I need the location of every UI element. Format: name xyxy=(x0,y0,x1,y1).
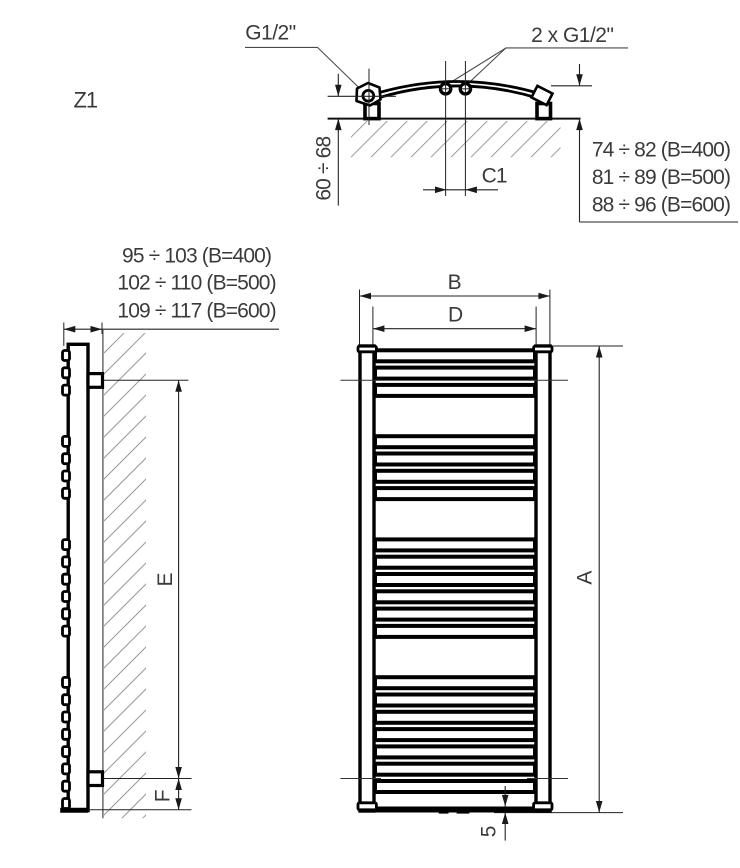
svg-text:88 ÷ 96 (B=600): 88 ÷ 96 (B=600) xyxy=(592,194,730,217)
svg-text:D: D xyxy=(448,304,463,327)
svg-text:G1/2": G1/2" xyxy=(245,21,296,44)
svg-text:B: B xyxy=(448,271,462,294)
svg-text:81 ÷ 89 (B=500): 81 ÷ 89 (B=500) xyxy=(592,166,730,189)
svg-text:5: 5 xyxy=(478,826,501,838)
svg-text:A: A xyxy=(574,571,597,585)
svg-text:F: F xyxy=(152,789,175,802)
svg-text:95 ÷ 103 (B=400): 95 ÷ 103 (B=400) xyxy=(122,245,271,268)
svg-text:60 ÷ 68: 60 ÷ 68 xyxy=(312,137,335,201)
svg-text:74 ÷ 82 (B=400): 74 ÷ 82 (B=400) xyxy=(592,139,730,162)
svg-text:Z1: Z1 xyxy=(73,88,97,113)
svg-text:E: E xyxy=(154,572,177,586)
svg-text:C1: C1 xyxy=(482,164,507,187)
svg-text:109 ÷ 117 (B=600): 109 ÷ 117 (B=600) xyxy=(117,299,275,322)
svg-text:102 ÷ 110 (B=500): 102 ÷ 110 (B=500) xyxy=(117,272,275,295)
svg-text:2 x G1/2": 2 x G1/2" xyxy=(531,24,613,47)
